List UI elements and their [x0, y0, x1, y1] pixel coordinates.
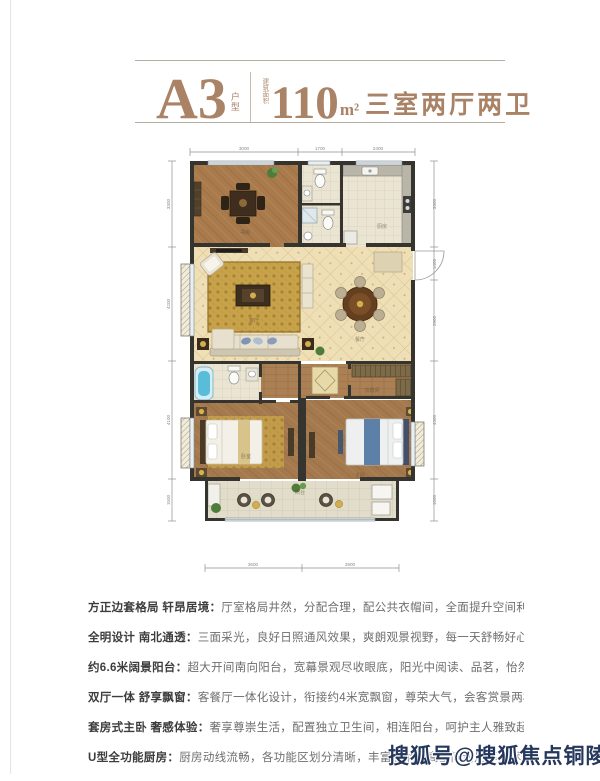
plan-code-suffix: 户型: [229, 92, 242, 118]
plan-header: A3 户型 建筑面积 110 m² 三室两厅两卫: [156, 64, 533, 124]
svg-text:1500: 1500: [166, 494, 171, 505]
page-left-border: [10, 0, 11, 774]
sohu-watermark: 搜狐号@搜狐焦点铜陵站: [388, 740, 600, 770]
bay-window-master: [415, 422, 424, 466]
svg-text:4300: 4300: [432, 414, 437, 425]
feature-desc: 厅室格局井然，分配合理，配公共衣帽间，全面提升空间利用率。: [221, 602, 524, 614]
svg-text:1500: 1500: [432, 494, 437, 505]
feature-item: 方正边套格局 轩昂居境：厅室格局井然，分配合理，配公共衣帽间，全面提升空间利用率…: [88, 601, 524, 615]
svg-text:餐厅: 餐厅: [355, 336, 365, 343]
plant-icon: [316, 347, 325, 356]
svg-text:3000: 3000: [239, 146, 250, 151]
floor-plan: 3000 1700 2400 3600 2900 3300 4200 4100 …: [150, 136, 450, 596]
feature-title: U型全功能厨房：: [88, 752, 179, 764]
svg-text:4100: 4100: [166, 414, 171, 425]
svg-text:3300: 3300: [166, 198, 171, 209]
feature-item: 双厅一体 舒享飘窗：客餐厅一体化设计，衔接约4米宽飘窗，尊荣大气，会客赏景两相宜…: [88, 691, 524, 705]
feature-title: 双厅一体 舒享飘窗：: [88, 692, 198, 704]
plan-code-text: A3: [156, 66, 227, 131]
bay-window-living: [181, 264, 190, 336]
svg-text:卧室: 卧室: [241, 453, 251, 460]
area-description: 三室两厅两卫: [365, 85, 533, 121]
svg-text:书房: 书房: [240, 229, 250, 236]
area-prefix: 建筑面积: [259, 78, 269, 118]
svg-text:1400: 1400: [432, 258, 437, 269]
feature-desc: 客餐厅一体化设计，衔接约4米宽飘窗，尊荣大气，会客赏景两相宜。: [198, 692, 524, 704]
plan-code: A3: [156, 73, 227, 124]
header-rule-top: [135, 60, 505, 61]
feature-desc: 奢享尊崇生活，配置独立卫生间，相连阳台，呵护主人雅致起居。: [210, 722, 525, 734]
sideboard-icon: [302, 264, 313, 308]
svg-text:1700: 1700: [315, 146, 326, 151]
svg-text:2900: 2900: [345, 562, 356, 567]
coffee-table-icon: [236, 285, 270, 306]
feature-title: 全明设计 南北通透：: [88, 632, 198, 644]
feature-desc: 三面采光，良好日照通风效果，爽朗观景视野，每一天舒畅好心情。: [198, 632, 524, 644]
feature-item: 约6.6米阔景阳台：超大开间南向阳台，宽幕景观尽收眼底，阳光中阅读、品茗，怡然自…: [88, 661, 524, 675]
entry-door-icon: [415, 251, 444, 280]
header-divider: [250, 72, 251, 122]
area-unit: m²: [340, 100, 359, 120]
svg-text:主卧: 主卧: [355, 472, 365, 479]
area-value: 110: [271, 84, 339, 124]
bay-window-bedroom2: [181, 418, 190, 468]
svg-text:衣帽间: 衣帽间: [364, 387, 379, 394]
svg-text:厨房: 厨房: [377, 223, 387, 230]
svg-text:阳台: 阳台: [295, 489, 305, 496]
svg-text:3300: 3300: [432, 198, 437, 209]
feature-title: 方正边套格局 轩昂居境：: [88, 602, 221, 614]
feature-title: 套房式主卧 奢感体验：: [88, 722, 210, 734]
feature-item: 全明设计 南北通透：三面采光，良好日照通风效果，爽朗观景视野，每一天舒畅好心情。: [88, 631, 524, 645]
svg-text:2900: 2900: [432, 315, 437, 326]
feature-desc: 超大开间南向阳台，宽幕景观尽收眼底，阳光中阅读、品茗，怡然自得。: [188, 662, 525, 674]
svg-text:2400: 2400: [373, 146, 384, 151]
bedroom2-bed-icon: [196, 407, 294, 477]
tv-icon: [216, 249, 242, 252]
washer-icon: [372, 485, 392, 499]
balcony-table-icon: [335, 500, 342, 507]
svg-text:3600: 3600: [248, 562, 259, 567]
hall-rug: [312, 367, 338, 394]
feature-item: 套房式主卧 奢感体验：奢享尊崇生活，配置独立卫生间，相连阳台，呵护主人雅致起居。: [88, 721, 524, 735]
bathtub-icon: [195, 367, 213, 400]
balcony-table-icon: [252, 501, 259, 508]
entry-mat: [374, 252, 402, 272]
feature-title: 约6.6米阔景阳台：: [88, 662, 188, 674]
svg-text:客厅: 客厅: [249, 317, 259, 324]
svg-text:4200: 4200: [166, 298, 171, 309]
